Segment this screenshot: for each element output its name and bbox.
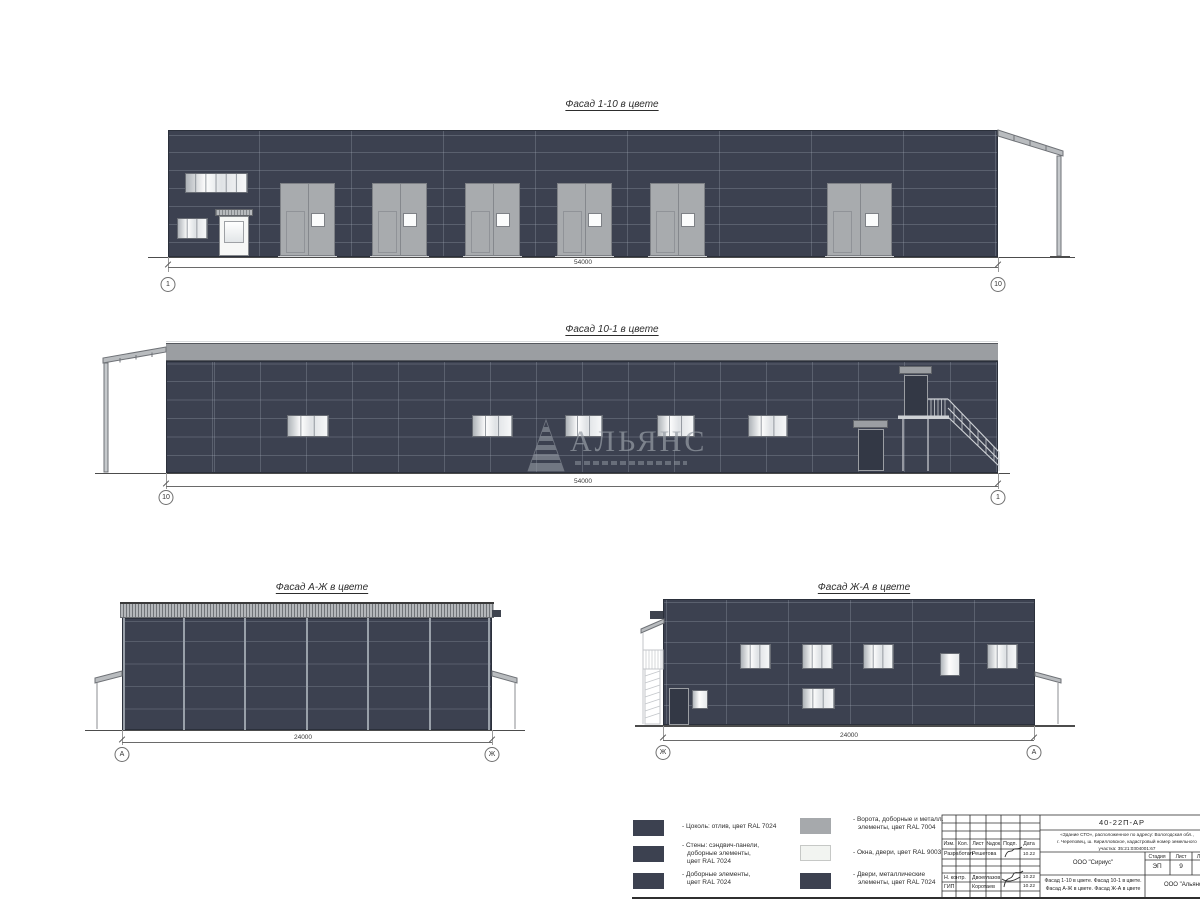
- dimension-label: 24000: [840, 732, 858, 739]
- tb-name: Двоеглазов: [972, 875, 1000, 881]
- legend-label: - Окна, двери, цвет RAL 9003: [853, 849, 941, 857]
- tb-stage-label: Стадия: [1148, 854, 1165, 860]
- tb-name: Коротаев: [972, 884, 995, 890]
- legend-swatch: [633, 820, 664, 836]
- side-canopy: [103, 347, 166, 472]
- tb-sheet-label: Лист: [1176, 854, 1187, 860]
- watermark-logo-text: АЛЬЯНС: [570, 425, 707, 459]
- sheet-frame-bottom: [632, 897, 1200, 899]
- legend-label: - Цоколь: отлив, цвет RAL 7024: [682, 823, 776, 831]
- dimension-line: [122, 742, 492, 743]
- gate-leaf-divider: [308, 184, 309, 255]
- stair-door-canopy: [899, 366, 932, 374]
- legend-label: элементы, цвет RAL 7024: [858, 879, 935, 887]
- roof-stub: [650, 611, 664, 619]
- tb-date: 10.22: [1023, 875, 1035, 880]
- ribbon-window: [185, 173, 248, 193]
- signature-scribbles: [1002, 847, 1023, 887]
- column-line: [123, 618, 125, 730]
- tb-content-line: Фасад А-Ж в цвете. Фасад Ж-А в цвете: [1046, 886, 1141, 892]
- tb-company: ООО "Альянс": [1164, 882, 1200, 888]
- axis-marker: 1: [991, 490, 1006, 505]
- gate: [280, 183, 335, 256]
- tb-address-line: «Здание СТО», расположенное по адресу: В…: [1060, 831, 1194, 838]
- column-line: [306, 618, 308, 730]
- gate-wicket-door: [833, 211, 852, 253]
- tb-sheet-value: 9: [1179, 863, 1183, 870]
- column-line: [488, 618, 490, 730]
- window: [802, 644, 833, 669]
- window: [177, 218, 208, 239]
- door-canopy: [853, 420, 888, 428]
- tb-date: 10.22: [1023, 884, 1035, 889]
- axis-marker: Ж: [485, 747, 500, 762]
- dimension-line: [168, 267, 998, 268]
- dimension-label: 54000: [574, 259, 592, 266]
- legend-label: цвет RAL 7024: [687, 879, 731, 887]
- ground-line: [95, 473, 1010, 475]
- ground-line: [148, 257, 1075, 259]
- axis-marker: А: [1027, 745, 1042, 760]
- legend-label: элементы, цвет RAL 7004: [858, 824, 935, 832]
- axis-marker: Ж: [656, 745, 671, 760]
- legend-label: - Доборные элементы,: [682, 871, 750, 879]
- facade-zh-a-title: Фасад Ж-А в цвете: [818, 582, 910, 593]
- legend-swatch: [800, 818, 831, 834]
- tb-org: ООО "Сириус": [1073, 860, 1113, 866]
- column-line: [183, 618, 185, 730]
- gate-window: [496, 213, 510, 227]
- tb-col-header: Лист: [972, 841, 983, 847]
- gate: [650, 183, 705, 256]
- gate-window: [681, 213, 695, 227]
- entrance-canopy: [215, 209, 253, 216]
- metal-door: [858, 429, 884, 471]
- side-canopy: [998, 130, 1070, 257]
- gate-wicket-door: [286, 211, 305, 253]
- dimension-line: [166, 486, 998, 487]
- axis-marker: А: [115, 747, 130, 762]
- gate-leaf-divider: [678, 184, 679, 255]
- gate-leaf-divider: [493, 184, 494, 255]
- dimension-label: 54000: [574, 478, 592, 485]
- gate-wicket-door: [471, 211, 490, 253]
- tb-col-header: №док.: [986, 841, 1001, 847]
- column-line: [367, 618, 369, 730]
- legend-label: - Ворота, доборные и металл.: [853, 816, 943, 824]
- gate: [372, 183, 427, 256]
- tb-stage-value: ЭП: [1152, 863, 1161, 870]
- gate-wicket-door: [378, 211, 397, 253]
- gate-wicket-door: [656, 211, 675, 253]
- window: [472, 415, 513, 437]
- column-line: [244, 618, 246, 730]
- parapet-cap-line: [166, 341, 998, 342]
- tb-col-header: Подп.: [1003, 841, 1017, 847]
- stair-door: [904, 375, 928, 418]
- facade-a-zh-title: Фасад А-Ж в цвете: [276, 582, 368, 593]
- window: [802, 688, 835, 709]
- gate-window: [311, 213, 325, 227]
- dimension-line: [663, 740, 1034, 741]
- legend-label: - Двери, металлические: [853, 871, 925, 879]
- tb-address-line: г. Череповец, ш. Кирилловское, кадастров…: [1057, 838, 1196, 845]
- tb-col-header: Дата: [1023, 841, 1035, 847]
- gutter-stub: [492, 610, 501, 617]
- gate-window: [403, 213, 417, 227]
- parapet-band: [166, 343, 998, 361]
- gate-window: [588, 213, 602, 227]
- tb-role: ГИП: [944, 884, 954, 890]
- gate: [465, 183, 520, 256]
- drawing-sheet: Фасад 1-10 в цвете 54000 1 10 Фасад 10-1…: [0, 0, 1200, 900]
- legend-label: доборные элементы,: [687, 850, 751, 858]
- dimension-label: 24000: [294, 734, 312, 741]
- window: [692, 690, 708, 709]
- window: [748, 415, 788, 437]
- legend-swatch: [800, 845, 831, 861]
- entrance-door-glass: [224, 221, 244, 243]
- window: [287, 415, 329, 437]
- window: [863, 644, 894, 669]
- axis-marker: 10: [159, 490, 174, 505]
- side-canopy: [1035, 672, 1061, 724]
- window: [987, 644, 1018, 669]
- legend-swatch: [800, 873, 831, 889]
- legend-swatch: [633, 846, 664, 862]
- facade-1-10-title: Фасад 1-10 в цвете: [565, 99, 658, 110]
- window: [740, 644, 771, 669]
- entrance-door: [219, 216, 249, 256]
- axis-marker: 1: [161, 277, 176, 292]
- gate-leaf-divider: [400, 184, 401, 255]
- roof-band: [120, 602, 494, 618]
- gate-wicket-door: [563, 211, 582, 253]
- metal-door: [669, 688, 689, 725]
- facade-10-1-title: Фасад 10-1 в цвете: [565, 324, 658, 335]
- axis-marker: 10: [991, 277, 1006, 292]
- tb-col-header: Кол.: [958, 841, 968, 847]
- exterior-stair: [641, 619, 664, 724]
- tb-name: Решетова: [972, 851, 996, 857]
- gate-leaf-divider: [860, 184, 861, 255]
- legend-label: цвет RAL 7024: [687, 858, 731, 866]
- tb-col-header: Изм.: [943, 841, 954, 847]
- tb-role: Разработал: [944, 851, 973, 857]
- tb-doc-number: 40-22П-АР: [1099, 818, 1145, 827]
- tb-date: 10.22: [1023, 852, 1035, 857]
- gate: [827, 183, 892, 256]
- watermark-tagline: [575, 461, 687, 465]
- tb-address-line: участка: 35:21:0304001:67: [1098, 845, 1155, 852]
- ground-line: [635, 725, 1075, 727]
- legend-label: - Стены: сэндвич-панели,: [682, 842, 759, 850]
- gate: [557, 183, 612, 256]
- tb-content-line: Фасад 1-10 в цвете. Фасад 10-1 в цвете.: [1044, 878, 1141, 884]
- column-line: [429, 618, 431, 730]
- tb-role: Н. контр.: [944, 875, 966, 881]
- legend-swatch: [633, 873, 664, 889]
- facade-zh-a-wall: [663, 599, 1035, 725]
- window: [940, 653, 960, 676]
- gate-leaf-divider: [585, 184, 586, 255]
- ground-line: [85, 730, 525, 732]
- gate-window: [865, 213, 879, 227]
